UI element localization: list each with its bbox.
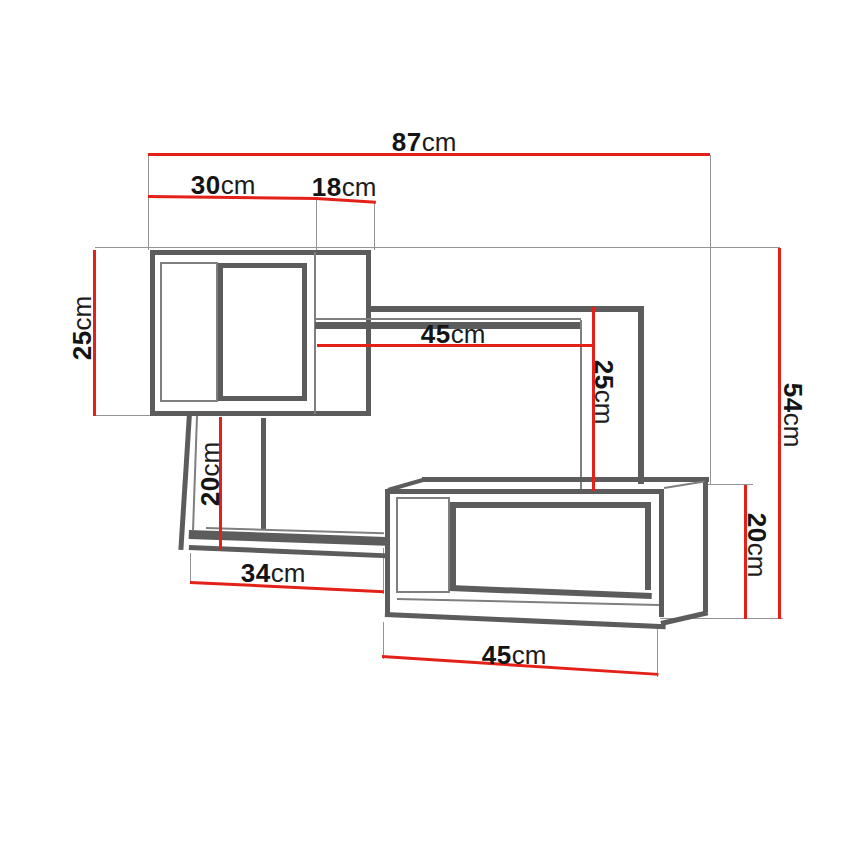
dim-cube-height-unit: cm xyxy=(67,296,97,331)
dim-total-width-unit: cm xyxy=(422,127,457,157)
dim-mid-shelf-value: 45 xyxy=(421,319,451,349)
extension-line-right-of-18 xyxy=(374,202,375,250)
dim-cube-height-value: 25 xyxy=(67,330,97,360)
dim-cube-depth-unit: cm xyxy=(342,172,377,202)
extension-line-top-reference xyxy=(95,247,780,248)
dim-left-panel-drop-label: 20cm xyxy=(197,442,223,507)
extension-line-right-of-87 xyxy=(710,155,711,484)
dim-box-width-value: 45 xyxy=(482,640,512,670)
middle-shelf-top-edge xyxy=(370,306,644,312)
box-shelf-top-back-edge xyxy=(422,477,709,482)
dim-total-height-unit: cm xyxy=(778,413,808,448)
dim-total-width-label: 87cm xyxy=(392,129,457,155)
middle-drop-panel-back-edge xyxy=(638,306,644,484)
extension-line-45-bottom-right xyxy=(657,628,658,677)
dim-mid-shelf-label: 45cm xyxy=(421,321,486,347)
lower-niche-divider-panel xyxy=(261,418,266,529)
dim-mid-panel-drop-label: 25cm xyxy=(591,360,617,425)
dim-left-panel-drop-value: 20 xyxy=(195,476,225,506)
dim-mid-shelf-unit: cm xyxy=(451,319,486,349)
dim-box-height-value: 20 xyxy=(742,513,772,543)
box-shelf-back-right-edge xyxy=(703,478,708,612)
extension-line-34-left xyxy=(190,553,191,584)
dim-bottom-shelf-unit: cm xyxy=(271,558,306,588)
dim-cube-height-label: 25cm xyxy=(69,296,95,361)
dim-box-height-label: 20cm xyxy=(744,513,770,578)
dim-total-height-label: 54cm xyxy=(780,383,806,448)
extension-line-bottom-of-25-left xyxy=(95,415,151,416)
shelf-dimension-drawing: 87cm 30cm 18cm 25cm 45cm 25cm 54cm 20cm … xyxy=(0,0,868,868)
dim-total-width-value: 87 xyxy=(392,127,422,157)
dim-box-height-unit: cm xyxy=(742,543,772,578)
dim-bottom-shelf-label: 34cm xyxy=(241,560,306,586)
extension-line-left-of-87 xyxy=(148,155,149,250)
dim-cube-width-value: 30 xyxy=(191,170,221,200)
dim-cube-width-label: 30cm xyxy=(191,172,256,198)
cube-shelf-left-side-panel xyxy=(160,262,218,402)
dim-total-height-value: 54 xyxy=(778,383,808,413)
dim-bottom-shelf-value: 34 xyxy=(241,558,271,588)
box-shelf-opening xyxy=(450,502,651,590)
dim-box-width-unit: cm xyxy=(512,640,547,670)
dim-box-width-label: 45cm xyxy=(482,642,547,668)
dim-cube-width-unit: cm xyxy=(221,170,256,200)
cube-shelf-opening xyxy=(218,263,307,401)
box-shelf-left-side-panel xyxy=(396,497,450,593)
extension-line-45-bottom-left xyxy=(383,622,384,659)
dim-left-panel-drop-unit: cm xyxy=(195,442,225,477)
dim-cube-depth-label: 18cm xyxy=(312,174,377,200)
dim-cube-depth-value: 18 xyxy=(312,172,342,202)
extension-line-30-18-split xyxy=(316,199,317,251)
dim-mid-panel-drop-value: 25 xyxy=(589,360,619,390)
cube-shelf-front-right-edge xyxy=(314,252,316,414)
dim-mid-panel-drop-unit: cm xyxy=(589,390,619,425)
